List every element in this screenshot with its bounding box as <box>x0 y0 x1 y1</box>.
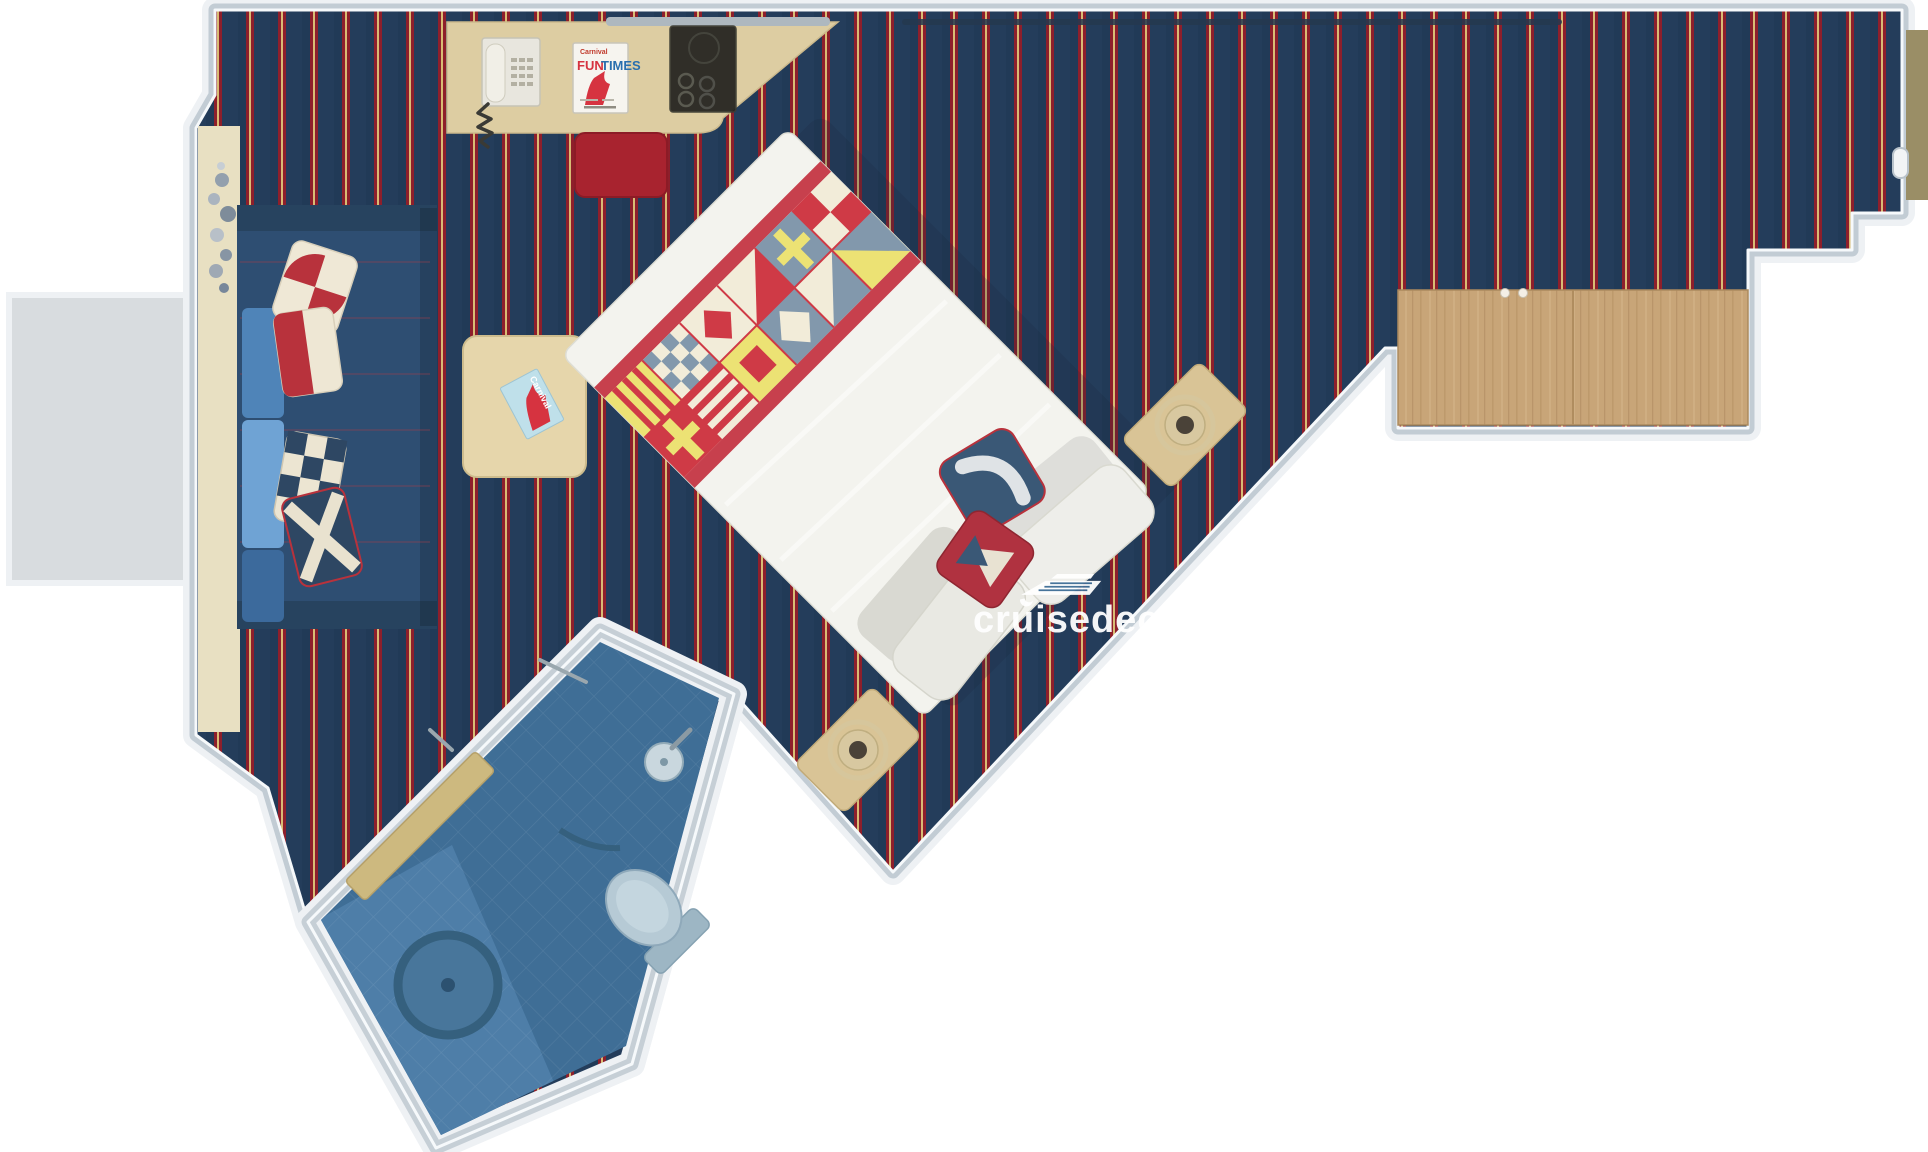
wardrobe <box>1398 289 1748 426</box>
desk-stool <box>575 133 667 197</box>
sofa-edge-shade <box>420 208 437 626</box>
magazine-title-times: TIMES <box>601 58 641 73</box>
balcony <box>6 292 202 586</box>
magazine-text-line <box>602 99 614 101</box>
lamp-center <box>849 741 867 759</box>
magazine-text-line <box>580 99 598 101</box>
sofa-pillow-halves <box>272 306 343 398</box>
cabin-floorplan: Carnival FUN TIMES <box>0 0 1928 1152</box>
telephone-handset <box>486 44 505 102</box>
watermark-text: cruisedeckplans <box>973 599 1286 641</box>
sink-drain <box>660 758 668 766</box>
wardrobe-knob <box>1519 289 1528 298</box>
bar-tray <box>670 26 736 112</box>
wardrobe-knob <box>1501 289 1510 298</box>
sofa-cushion <box>242 420 284 548</box>
floorplan-canvas: Carnival FUN TIMES <box>0 0 1928 1152</box>
balcony-deck <box>12 298 190 580</box>
magazine-title-fun: FUN <box>577 58 604 73</box>
sofa <box>237 205 437 629</box>
magazine-text-line <box>584 106 616 109</box>
desk-light-bar <box>606 17 830 26</box>
shower-drain <box>441 978 455 992</box>
entry-door-handle <box>1893 148 1908 178</box>
lamp-center <box>1176 416 1194 434</box>
entry-door-slab <box>1906 30 1928 200</box>
sofa-cushion <box>242 550 284 622</box>
sofa-top-arm <box>237 205 437 231</box>
curtain-rail <box>902 19 1562 25</box>
magazine-brand: Carnival <box>580 49 608 56</box>
